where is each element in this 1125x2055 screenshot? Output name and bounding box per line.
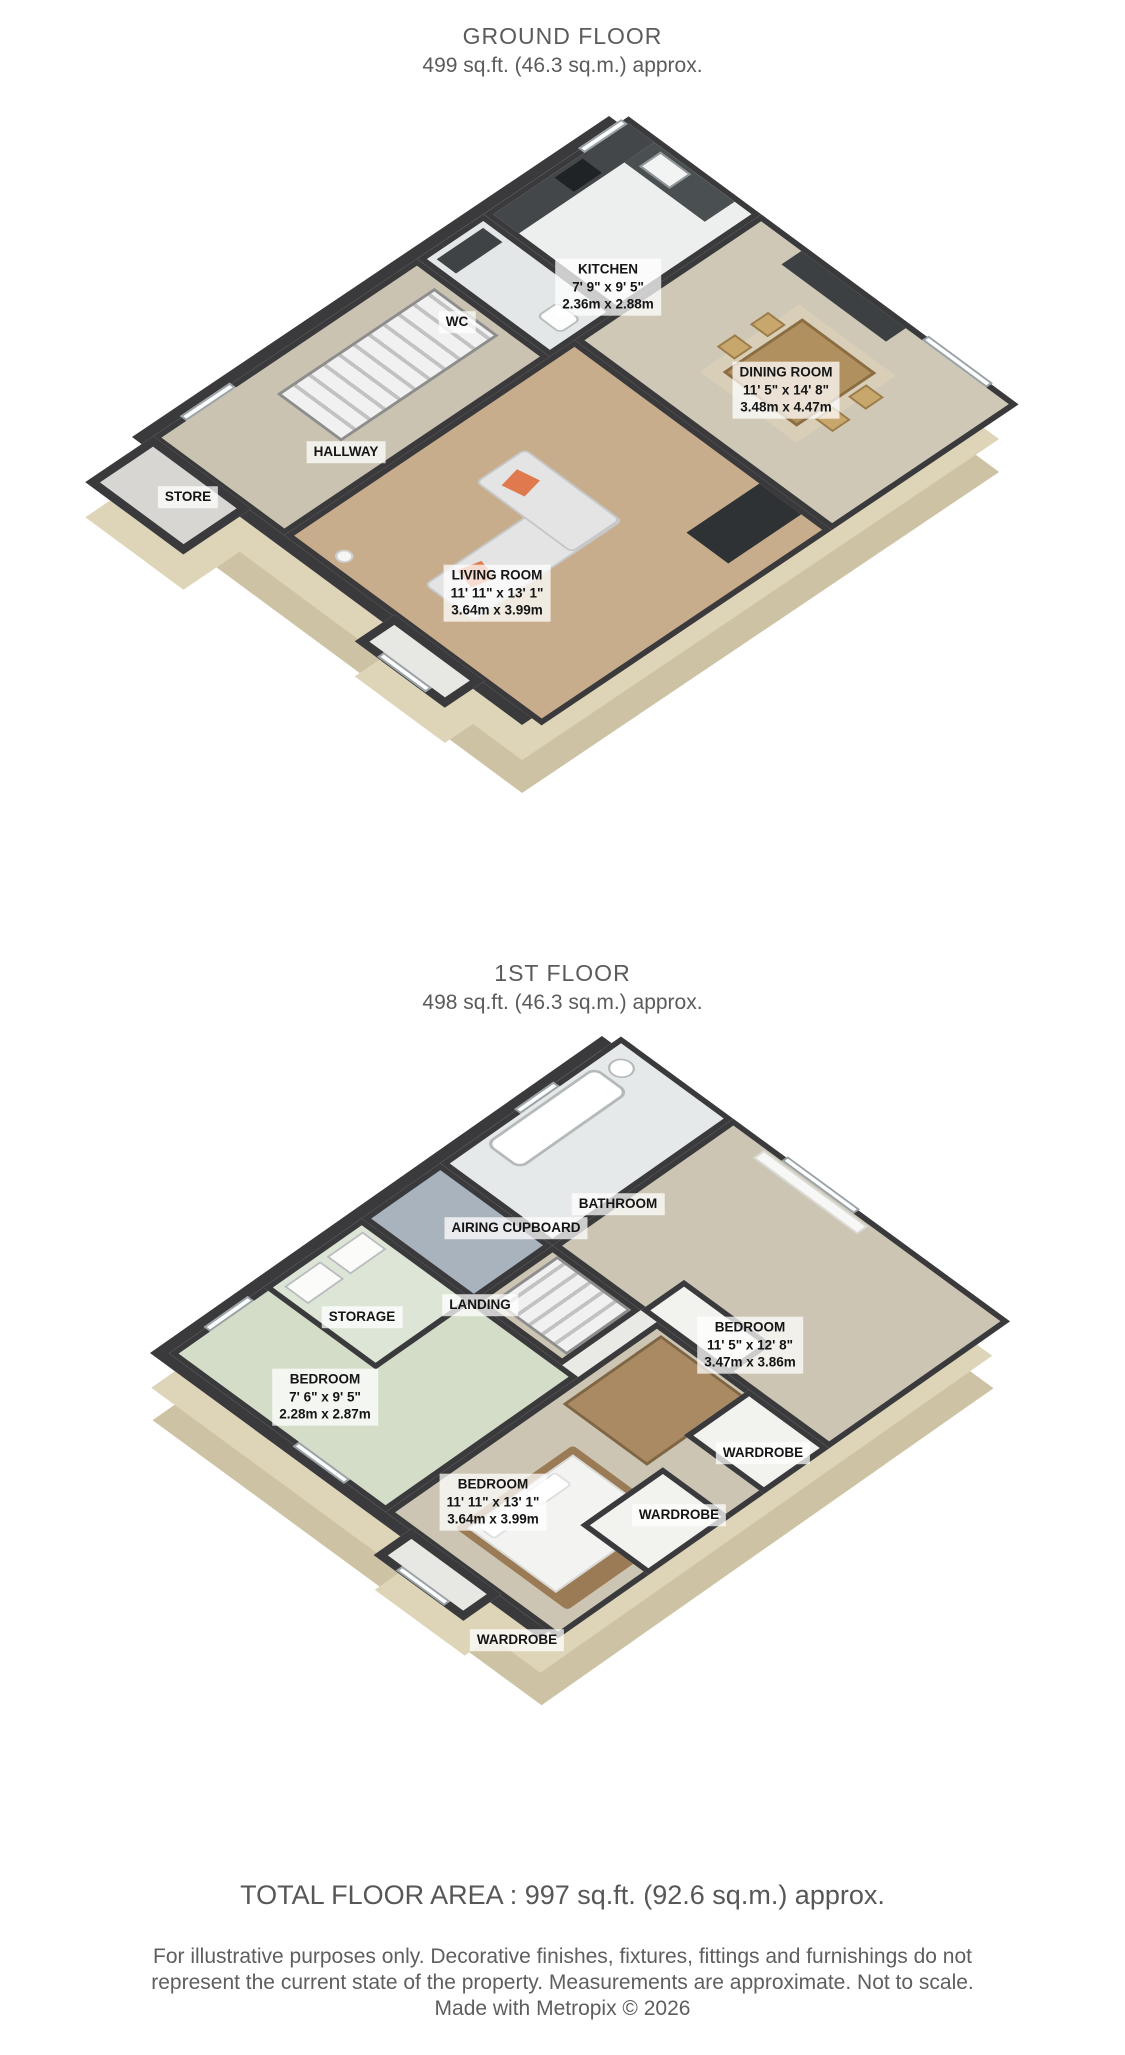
room-dims-metric: 3.64m x 3.99m xyxy=(451,602,544,620)
room-name: HALLWAY xyxy=(314,443,379,461)
room-name: LIVING ROOM xyxy=(451,567,544,585)
bay-glass-first xyxy=(396,1566,450,1606)
label-storage: STORAGE xyxy=(322,1306,403,1328)
room-name: BATHROOM xyxy=(579,1195,658,1213)
room-dims-imperial: 11' 11" x 13' 1" xyxy=(451,584,544,602)
bathtub xyxy=(484,1067,629,1170)
bedroom-small-window2 xyxy=(204,1296,254,1332)
total-floor-area: TOTAL FLOOR AREA : 997 sq.ft. (92.6 sq.m… xyxy=(0,1880,1125,1911)
floorplan-page: GROUND FLOOR 499 sq.ft. (46.3 sq.m.) app… xyxy=(0,0,1125,2055)
label-store: STORE xyxy=(158,486,218,508)
label-dining: DINING ROOM 11' 5" x 14' 8" 3.48m x 4.47… xyxy=(733,362,840,419)
label-bathroom: BATHROOM xyxy=(572,1193,665,1215)
room-dims-metric: 3.47m x 3.86m xyxy=(704,1354,796,1372)
label-wc: WC xyxy=(439,311,476,333)
room-name: DINING ROOM xyxy=(740,364,833,382)
ground-floor-area: 499 sq.ft. (46.3 sq.m.) approx. xyxy=(0,54,1125,78)
room-name: BEDROOM xyxy=(447,1476,540,1494)
tv-unit xyxy=(686,483,801,563)
room-name: WARDROBE xyxy=(477,1631,557,1649)
label-hallway: HALLWAY xyxy=(307,441,386,463)
room-dims-imperial: 7' 6" x 9' 5" xyxy=(279,1388,371,1406)
room-dims-imperial: 11' 5" x 14' 8" xyxy=(740,381,833,399)
first-floor-area: 498 sq.ft. (46.3 sq.m.) approx. xyxy=(0,991,1125,1015)
room-name: WARDROBE xyxy=(723,1444,803,1462)
hallway-window xyxy=(180,383,236,421)
room-dims-metric: 3.64m x 3.99m xyxy=(447,1511,540,1529)
ground-floor-title: GROUND FLOOR xyxy=(0,23,1125,50)
label-wardrobe-bottom: WARDROBE xyxy=(470,1629,564,1651)
dining-doors xyxy=(922,336,993,388)
room-name: WC xyxy=(446,313,469,331)
label-landing: LANDING xyxy=(442,1294,518,1316)
storage-cupboard xyxy=(284,1261,344,1304)
room-name: BEDROOM xyxy=(704,1319,796,1337)
disclaimer-line: Made with Metropix © 2026 xyxy=(0,1996,1125,2022)
label-airing-cupboard: AIRING CUPBOARD xyxy=(444,1217,587,1239)
floor-lamp xyxy=(331,547,357,565)
label-living: LIVING ROOM 11' 11" x 13' 1" 3.64m x 3.9… xyxy=(444,565,551,622)
label-bedroom-small: BEDROOM 7' 6" x 9' 5" 2.28m x 2.87m xyxy=(272,1369,378,1426)
disclaimer: For illustrative purposes only. Decorati… xyxy=(0,1944,1125,2022)
first-floor-plan xyxy=(150,1036,991,1638)
disclaimer-line: For illustrative purposes only. Decorati… xyxy=(0,1944,1125,1970)
room-dims-imperial: 7' 9" x 9' 5" xyxy=(562,278,654,296)
room-dims-metric: 2.36m x 2.88m xyxy=(562,296,654,314)
room-dims-imperial: 11' 5" x 12' 8" xyxy=(704,1336,796,1354)
curtains xyxy=(753,1150,868,1234)
room-dims-metric: 2.28m x 2.87m xyxy=(279,1406,371,1424)
wc-vanity xyxy=(437,228,503,274)
room-dims-imperial: 11' 11" x 13' 1" xyxy=(447,1493,540,1511)
room-name: STORE xyxy=(165,488,211,506)
label-kitchen: KITCHEN 7' 9" x 9' 5" 2.36m x 2.88m xyxy=(555,259,661,316)
room-name: BEDROOM xyxy=(279,1371,371,1389)
bay-glass xyxy=(377,652,432,692)
room-name: WARDROBE xyxy=(639,1506,719,1524)
label-bedroom-master: BEDROOM 11' 11" x 13' 1" 3.64m x 3.99m xyxy=(440,1474,547,1531)
label-wardrobe-top: WARDROBE xyxy=(716,1442,810,1464)
bedroom-small-window xyxy=(293,1442,351,1484)
label-wardrobe-mid: WARDROBE xyxy=(632,1504,726,1526)
room-dims-metric: 3.48m x 4.47m xyxy=(740,399,833,417)
room-name: KITCHEN xyxy=(562,261,654,279)
disclaimer-line: represent the current state of the prope… xyxy=(0,1970,1125,1996)
ground-floor-plan xyxy=(132,116,999,725)
label-bedroom-right: BEDROOM 11' 5" x 12' 8" 3.47m x 3.86m xyxy=(697,1317,803,1374)
first-floor-title: 1ST FLOOR xyxy=(0,960,1125,987)
room-name: STORAGE xyxy=(329,1308,396,1326)
room-name: AIRING CUPBOARD xyxy=(451,1219,580,1237)
storage-cupboard xyxy=(326,1231,386,1274)
room-name: LANDING xyxy=(449,1296,511,1314)
